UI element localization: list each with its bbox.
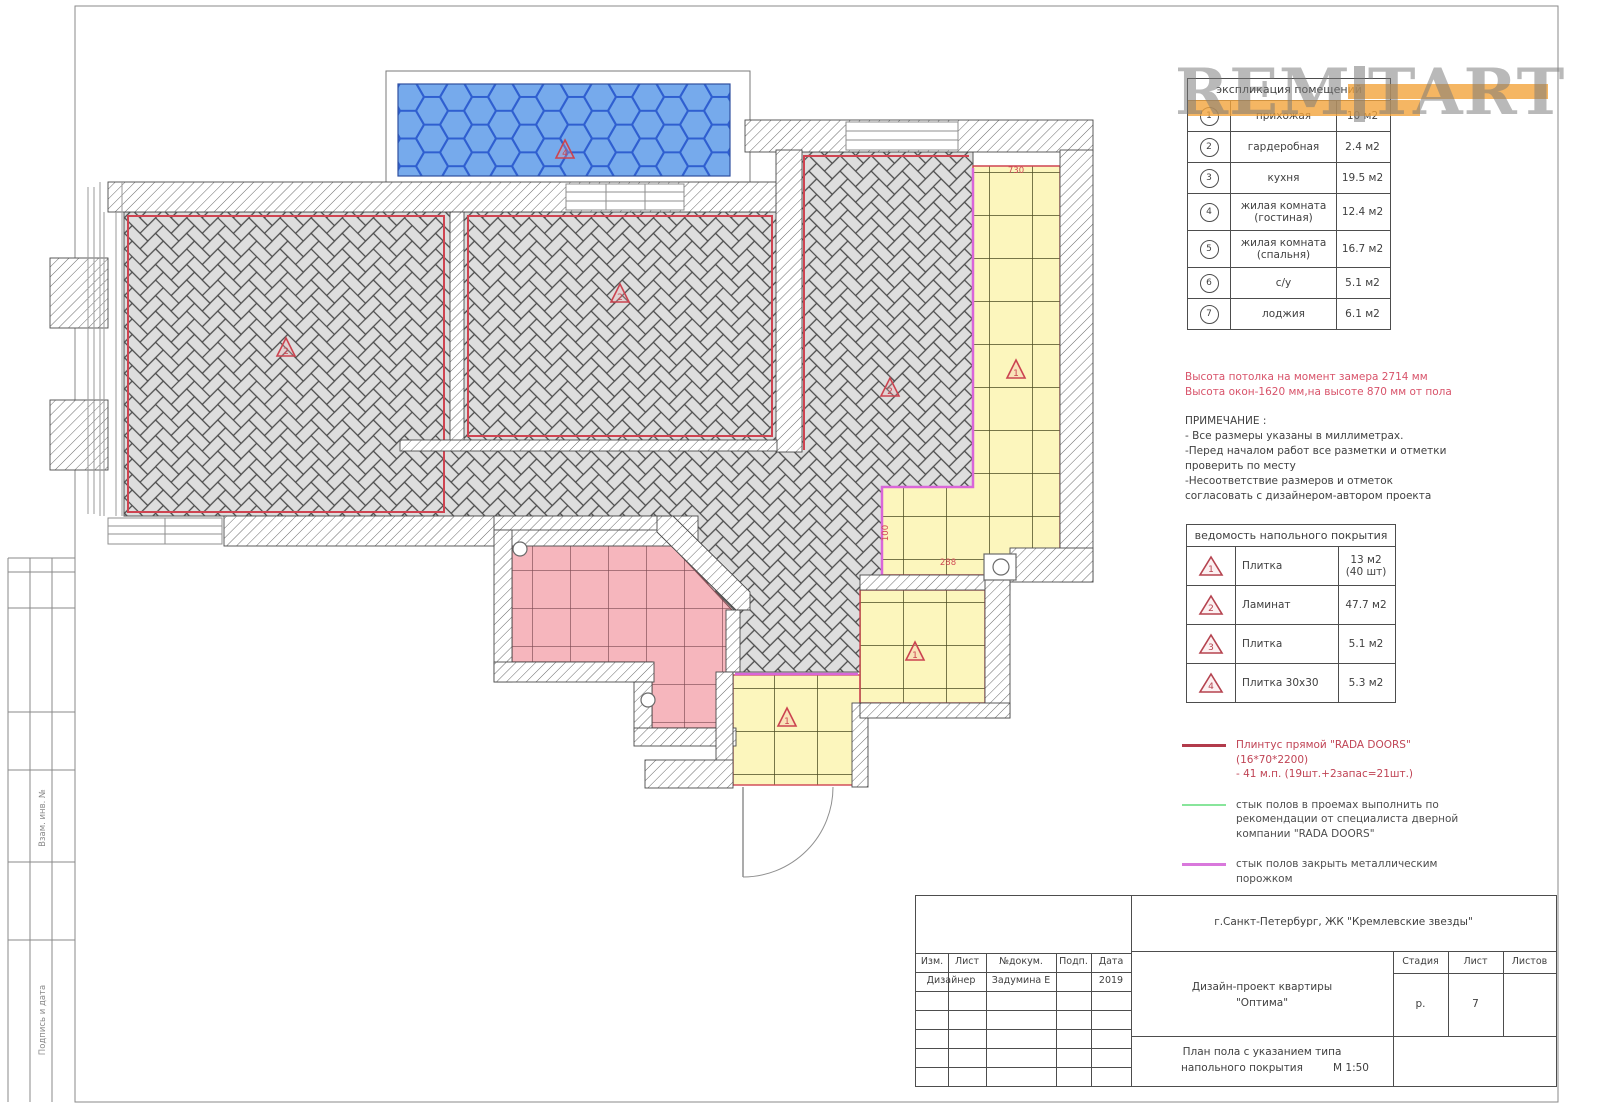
notes-items: - Все размеры указаны в миллиметрах.-Пер…: [1185, 429, 1455, 504]
explication-row: 5 жилая комната (спальня) 16.7 м2: [1188, 230, 1390, 267]
explication-rows: 1 прихожая 10 м2 2 гардеробная 2.4 м2 3 …: [1188, 100, 1390, 329]
ceiling-height-note: Высота потолка на момент замера 2714 мм: [1185, 370, 1455, 385]
hallway-tile-floor-1: [733, 675, 860, 785]
room-area: 16.7 м2: [1336, 231, 1388, 267]
explication-row: 3 кухня 19.5 м2: [1188, 162, 1390, 193]
legend-line-sample: [1182, 804, 1226, 807]
room-number-badge: 7: [1200, 305, 1219, 324]
covering-area: 13 м2 (40 шт): [1338, 547, 1393, 585]
notes-title: ПРИМЕЧАНИЕ :: [1185, 414, 1455, 429]
svg-text:1: 1: [1013, 369, 1019, 379]
room-area: 6.1 м2: [1336, 299, 1388, 329]
room-area: 10 м2: [1336, 101, 1388, 131]
stage-value: р.: [1393, 998, 1448, 1010]
sheet-scale: М 1:50: [1306, 1062, 1396, 1074]
covering-area: 5.3 м2: [1338, 664, 1393, 702]
legend-text: стык полов в проемах выполнить по рекоме…: [1236, 798, 1458, 842]
legend-line-sample: [1182, 863, 1226, 866]
svg-text:1: 1: [1208, 565, 1214, 575]
col-podp: Подп.: [1056, 956, 1091, 967]
svg-text:2: 2: [617, 293, 623, 303]
room-name: прихожая: [1230, 101, 1336, 131]
covering-name: Плитка: [1235, 625, 1338, 663]
explication-title: экспликация помещений: [1188, 79, 1390, 100]
window-height-note: Высота окон-1620 мм,на высоте 870 мм от …: [1185, 385, 1455, 400]
explication-row: 2 гардеробная 2.4 м2: [1188, 131, 1390, 162]
entry-door: [743, 787, 833, 877]
flooring-row: 4 Плитка 30х30 5.3 м2: [1187, 663, 1395, 702]
covering-name: Плитка 30х30: [1235, 664, 1338, 702]
col-ndokum: №докум.: [986, 956, 1056, 967]
project-name-line2: "Оптима": [1131, 997, 1393, 1009]
room-area: 5.1 м2: [1336, 268, 1388, 298]
room-number-badge: 5: [1200, 240, 1219, 259]
flooring-row: 2 Ламинат 47.7 м2: [1187, 585, 1395, 624]
notes-block: Высота потолка на момент замера 2714 мм …: [1185, 370, 1455, 504]
legend-item: стык полов в проемах выполнить по рекоме…: [1182, 798, 1462, 842]
room-name: с/у: [1230, 268, 1336, 298]
stage-label: Стадия: [1393, 956, 1448, 967]
dimension-label: 288: [940, 558, 956, 568]
flooring-row: 3 Плитка 5.1 м2: [1187, 624, 1395, 663]
room-name: лоджия: [1230, 299, 1336, 329]
room-name: кухня: [1230, 163, 1336, 193]
svg-text:3: 3: [1208, 643, 1214, 653]
explication-row: 4 жилая комната (гостиная) 12.4 м2: [1188, 193, 1390, 230]
room-name: жилая комната (спальня): [1230, 231, 1336, 267]
legend-line-sample: [1182, 744, 1226, 747]
covering-area: 5.1 м2: [1338, 625, 1393, 663]
svg-text:4: 4: [562, 149, 568, 159]
designer-role: Дизайнер: [916, 975, 986, 986]
room-area: 2.4 м2: [1336, 132, 1388, 162]
sink-icon: [513, 542, 527, 556]
loggia: [386, 71, 750, 191]
col-izm: Изм.: [916, 956, 948, 967]
legend-text: стык полов закрыть металлическим порожко…: [1236, 857, 1437, 886]
legend-text: Плинтус прямой "RADA DOORS" (16*70*2200)…: [1236, 738, 1462, 782]
project-name-line1: Дизайн-проект квартиры: [1131, 981, 1393, 993]
explication-row: 7 лоджия 6.1 м2: [1188, 298, 1390, 329]
col-data: Дата: [1091, 956, 1131, 967]
svg-text:2: 2: [283, 347, 289, 357]
dimension-label: 100: [881, 525, 891, 541]
covering-name: Ламинат: [1235, 586, 1338, 624]
designer-date: 2019: [1091, 975, 1131, 986]
sheet-label: Лист: [1448, 956, 1503, 967]
svg-text:1: 1: [912, 651, 918, 661]
legend-item: стык полов закрыть металлическим порожко…: [1182, 857, 1462, 886]
frame-label-vzam: Взам. инв. №: [38, 789, 48, 847]
room-number-badge: 3: [1200, 169, 1219, 188]
sheet-name-line1: План пола с указанием типа: [1131, 1046, 1393, 1058]
covering-name: Плитка: [1235, 547, 1338, 585]
flooring-row: 1 Плитка 13 м2 (40 шт): [1187, 546, 1395, 585]
legend: Плинтус прямой "RADA DOORS" (16*70*2200)…: [1182, 738, 1462, 902]
hallway-tile-floor-2: [860, 590, 985, 703]
room-number-badge: 2: [1200, 138, 1219, 157]
dimension-label: 730: [1008, 166, 1024, 176]
note-item: -Перед началом работ все разметки и отме…: [1185, 444, 1447, 474]
sheets-label: Листов: [1503, 956, 1556, 967]
room-name: жилая комната (гостиная): [1230, 194, 1336, 230]
flooring-title: ведомость напольного покрытия: [1187, 525, 1395, 546]
project-address: г.Санкт-Петербург, ЖК "Кремлевские звезд…: [1131, 916, 1556, 928]
flooring-rows: 1 Плитка 13 м2 (40 шт) 2 Ламинат 47.7 м2…: [1187, 546, 1395, 702]
room-area: 12.4 м2: [1336, 194, 1388, 230]
frame-label-podpis: Подпись и дата: [38, 985, 48, 1055]
floor-marker-triangle-icon: 3: [1198, 633, 1224, 655]
room-area: 19.5 м2: [1336, 163, 1388, 193]
svg-text:4: 4: [1208, 682, 1214, 692]
designer-name: Задумина Е: [986, 975, 1056, 986]
covering-area: 47.7 м2: [1338, 586, 1393, 624]
legend-item: Плинтус прямой "RADA DOORS" (16*70*2200)…: [1182, 738, 1462, 782]
col-list: Лист: [948, 956, 986, 967]
drawing-sheet: Взам. инв. № Подпись и дата: [0, 0, 1600, 1108]
floor-marker-triangle-icon: 4: [1198, 672, 1224, 694]
floor-marker-triangle-icon: 2: [1198, 594, 1224, 616]
note-item: -Несоответствие размеров и отметок согла…: [1185, 474, 1447, 504]
floor-covering-table: ведомость напольного покрытия 1 Плитка 1…: [1186, 524, 1396, 703]
title-block: Изм. Лист №докум. Подп. Дата Дизайнер За…: [915, 895, 1557, 1087]
explication-row: 6 с/у 5.1 м2: [1188, 267, 1390, 298]
room-number-badge: 1: [1200, 107, 1219, 126]
room-number-badge: 4: [1200, 203, 1219, 222]
floor-marker-triangle-icon: 1: [1198, 555, 1224, 577]
sheet-value: 7: [1448, 998, 1503, 1010]
sink-icon-2: [641, 693, 655, 707]
note-item: - Все размеры указаны в миллиметрах.: [1185, 429, 1447, 444]
loggia-hex-tile-floor: [398, 84, 730, 176]
svg-text:1: 1: [784, 717, 790, 727]
room-number-badge: 6: [1200, 274, 1219, 293]
svg-text:2: 2: [1208, 604, 1214, 614]
room-explication-table: экспликация помещений 1 прихожая 10 м2 2…: [1187, 78, 1391, 330]
explication-row: 1 прихожая 10 м2: [1188, 100, 1390, 131]
room-name: гардеробная: [1230, 132, 1336, 162]
svg-text:2: 2: [887, 387, 893, 397]
